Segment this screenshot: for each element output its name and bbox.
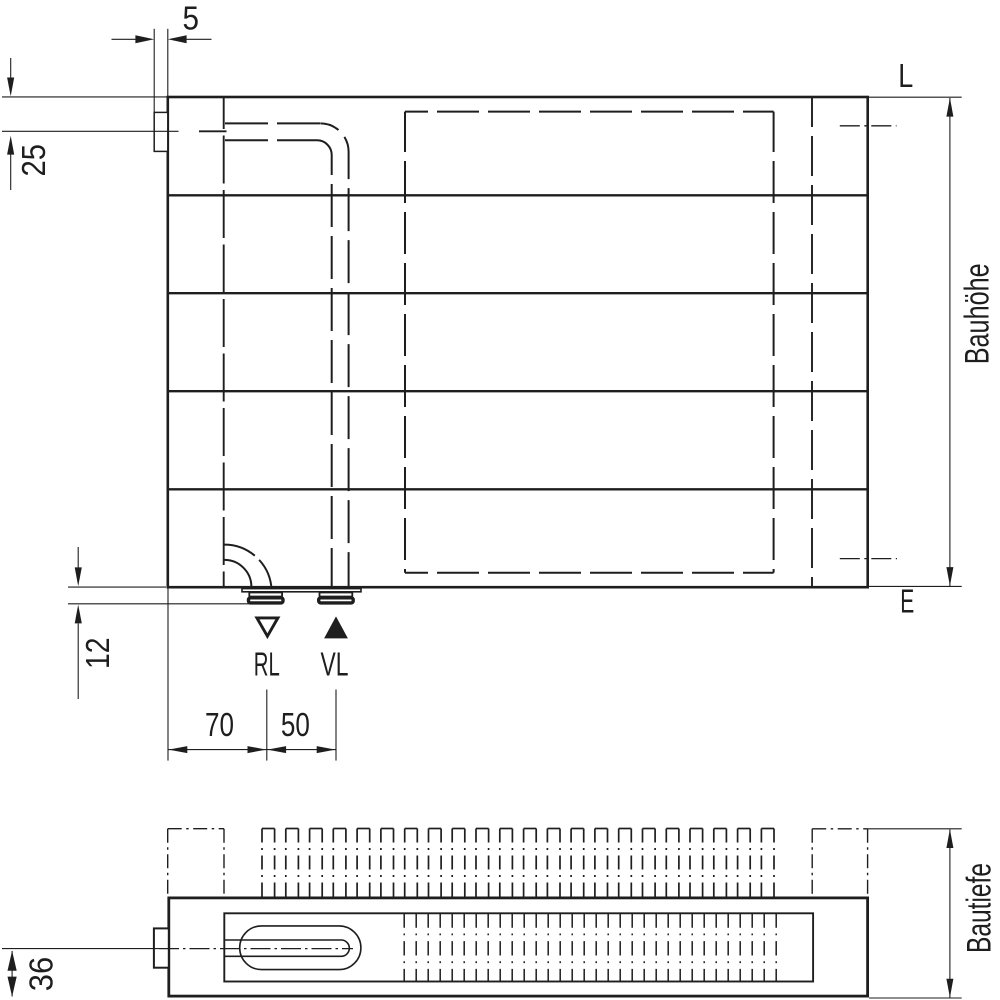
svg-text:36: 36	[23, 957, 60, 992]
svg-text:L: L	[898, 57, 913, 94]
svg-text:25: 25	[15, 144, 52, 177]
svg-text:RL: RL	[254, 645, 280, 682]
svg-text:12: 12	[79, 638, 116, 670]
svg-text:70: 70	[205, 706, 234, 743]
svg-text:VL: VL	[321, 645, 349, 682]
svg-text:5: 5	[183, 0, 200, 37]
svg-text:E: E	[900, 582, 914, 619]
svg-text:Bautiefe: Bautiefe	[961, 863, 999, 953]
svg-text:50: 50	[281, 706, 310, 743]
svg-text:Bauhöhe: Bauhöhe	[958, 263, 996, 364]
